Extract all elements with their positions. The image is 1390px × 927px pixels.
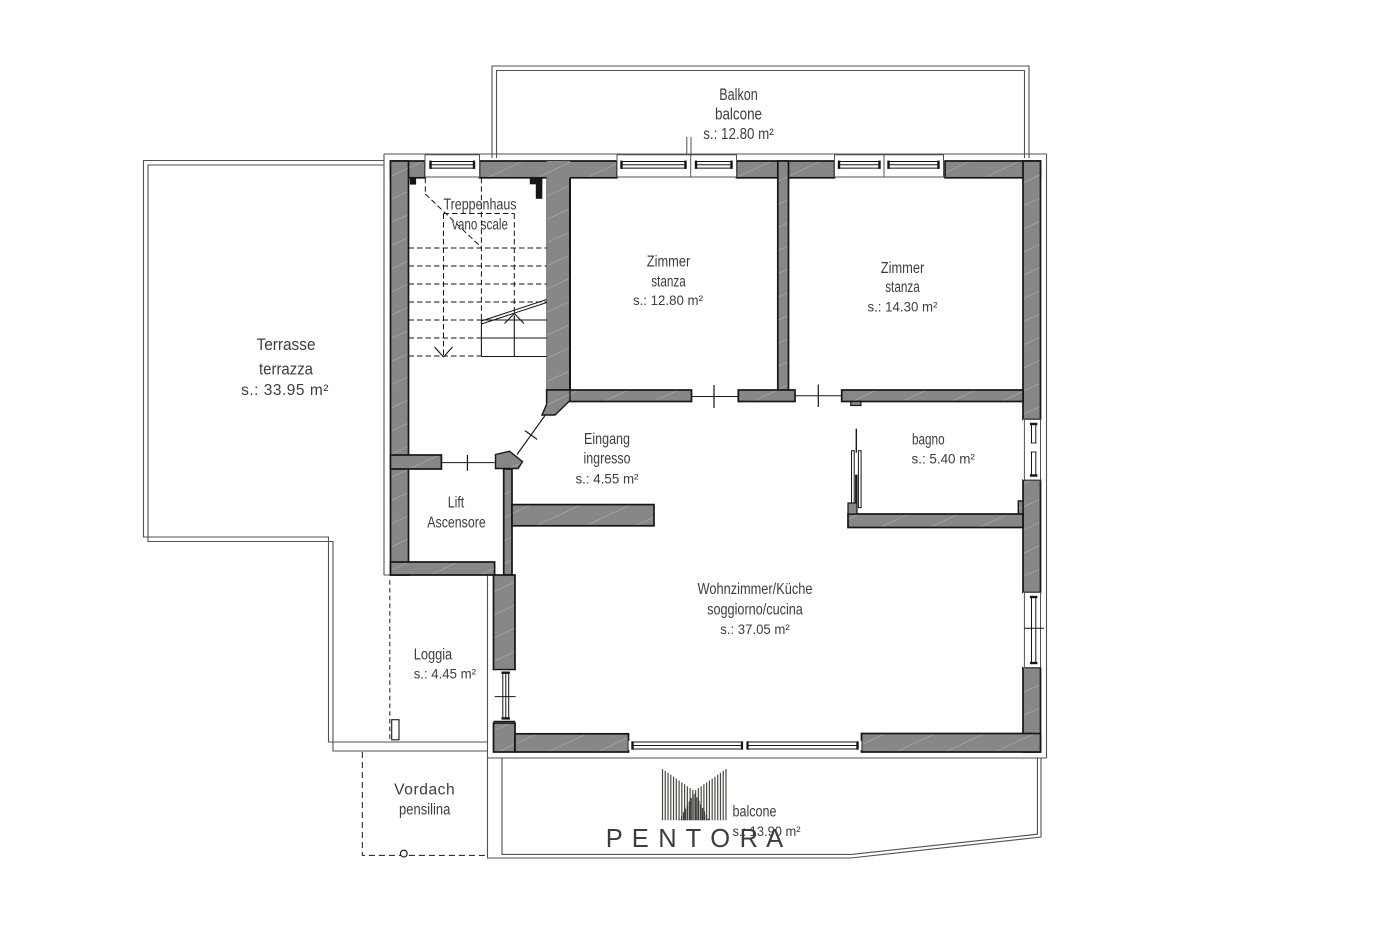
svg-text:Zimmer: Zimmer xyxy=(881,260,925,277)
svg-text:s.: 37.05 m²: s.: 37.05 m² xyxy=(720,621,790,637)
svg-text:Ascensore: Ascensore xyxy=(427,515,486,532)
svg-text:Vordach: Vordach xyxy=(394,782,455,799)
svg-text:Lift: Lift xyxy=(448,495,465,512)
svg-text:Eingang: Eingang xyxy=(584,431,630,448)
svg-text:Terrasse: Terrasse xyxy=(257,335,316,354)
svg-text:pensilina: pensilina xyxy=(399,802,451,819)
svg-text:terrazza: terrazza xyxy=(259,360,313,379)
svg-text:balcone: balcone xyxy=(733,803,777,820)
svg-text:s.: 4.45 m²: s.: 4.45 m² xyxy=(414,666,477,682)
svg-text:Wohnzimmer/Küche: Wohnzimmer/Küche xyxy=(698,581,813,598)
svg-text:balcone: balcone xyxy=(715,105,762,124)
svg-text:soggiorno/cucina: soggiorno/cucina xyxy=(707,602,803,619)
svg-text:s.: 4.55 m²: s.: 4.55 m² xyxy=(576,471,639,487)
svg-text:s.: 33.95 m²: s.: 33.95 m² xyxy=(241,382,329,399)
svg-text:stanza: stanza xyxy=(885,279,920,296)
svg-text:Balkon: Balkon xyxy=(719,85,758,104)
svg-text:bagno: bagno xyxy=(912,432,945,449)
svg-text:P E N T O R A: P E N T O R A xyxy=(606,825,785,853)
svg-text:Zimmer: Zimmer xyxy=(647,254,691,271)
svg-text:Treppenhaus: Treppenhaus xyxy=(444,197,517,214)
svg-text:stanza: stanza xyxy=(651,274,686,291)
svg-text:s.: 5.40 m²: s.: 5.40 m² xyxy=(912,451,976,467)
svg-text:vano scale: vano scale xyxy=(452,217,508,234)
svg-text:Loggia: Loggia xyxy=(414,647,453,664)
svg-text:s.: 14.30 m²: s.: 14.30 m² xyxy=(868,299,938,315)
svg-text:s.: 12.80 m²: s.: 12.80 m² xyxy=(633,292,703,308)
svg-text:ingresso: ingresso xyxy=(584,451,631,468)
svg-text:s.: 12.80 m²: s.: 12.80 m² xyxy=(703,126,774,143)
